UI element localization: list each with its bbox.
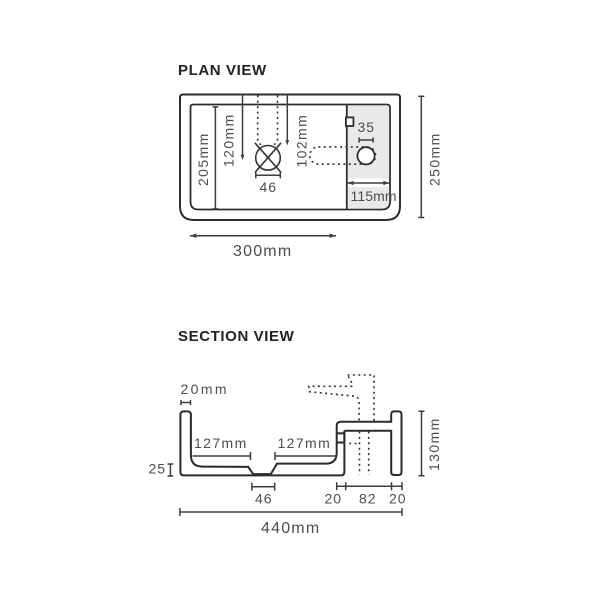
svg-text:82: 82 (359, 491, 377, 507)
svg-text:35: 35 (358, 119, 376, 135)
svg-text:20: 20 (389, 491, 407, 507)
svg-text:115mm: 115mm (351, 188, 397, 204)
svg-text:SECTION VIEW: SECTION VIEW (178, 328, 295, 345)
svg-text:205mm: 205mm (195, 132, 211, 186)
svg-text:127mm: 127mm (194, 435, 248, 451)
svg-text:130mm: 130mm (426, 417, 442, 471)
svg-text:20mm: 20mm (181, 381, 230, 397)
svg-text:25: 25 (149, 461, 167, 477)
svg-text:46: 46 (255, 491, 273, 507)
svg-text:250mm: 250mm (427, 132, 443, 186)
svg-text:440mm: 440mm (261, 520, 320, 537)
svg-text:300mm: 300mm (233, 243, 292, 260)
svg-text:20: 20 (325, 491, 343, 507)
svg-text:120mm: 120mm (221, 113, 237, 167)
svg-text:102mm: 102mm (294, 114, 310, 168)
svg-text:127mm: 127mm (278, 435, 332, 451)
svg-text:46: 46 (260, 179, 278, 195)
svg-text:PLAN VIEW: PLAN VIEW (178, 62, 267, 79)
